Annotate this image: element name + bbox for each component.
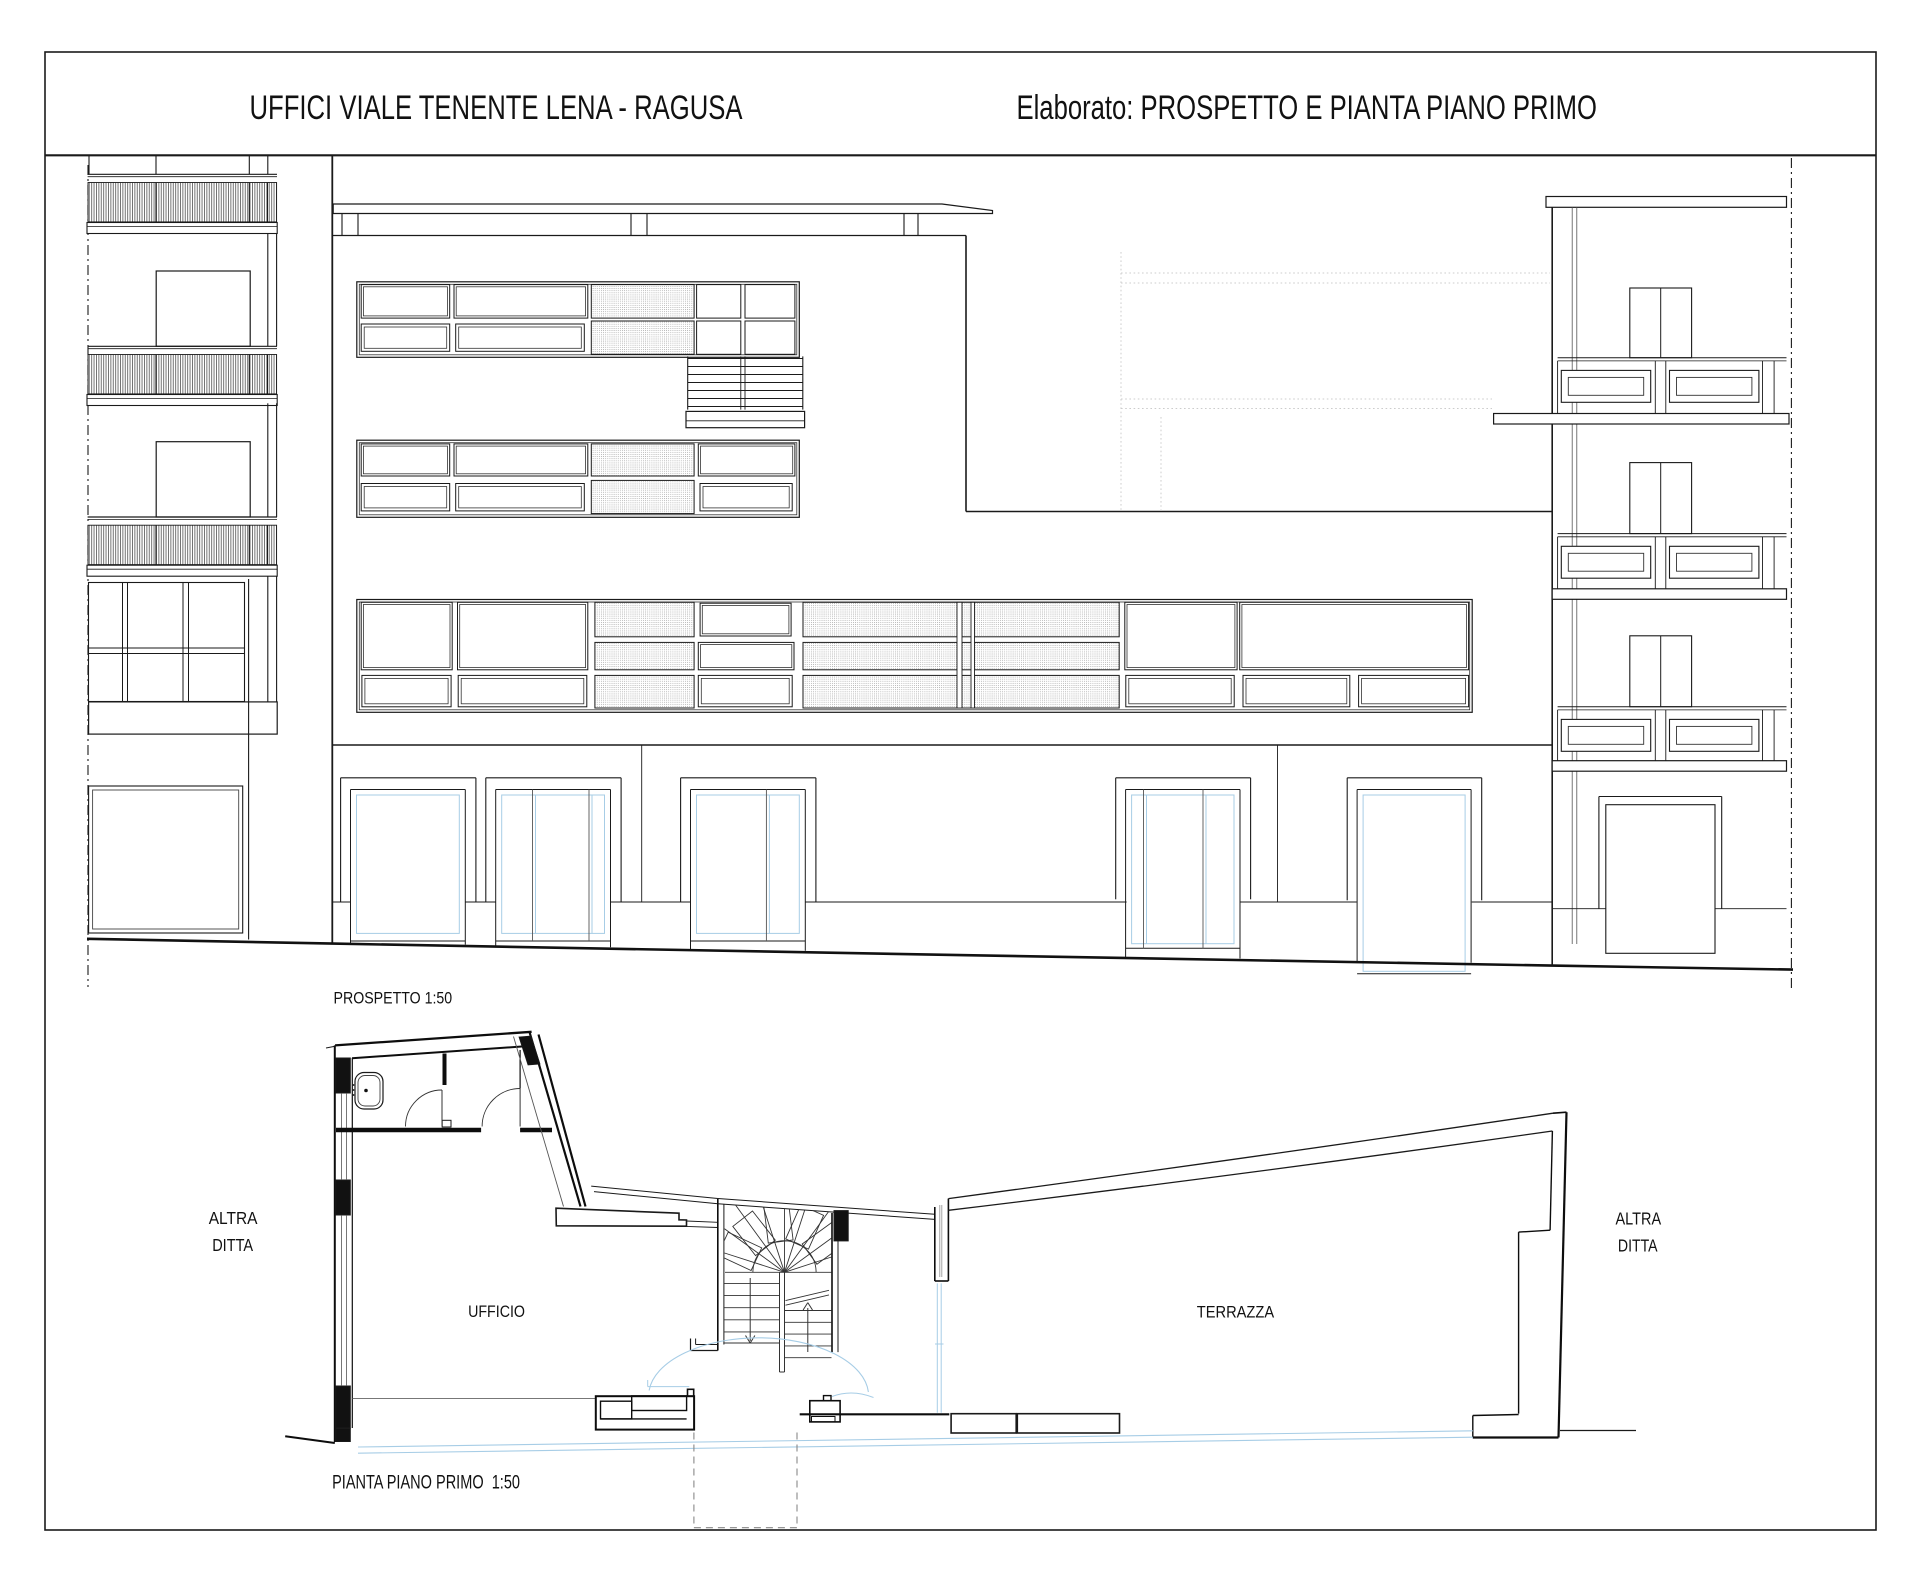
svg-text:PIANTA PIANO PRIMO 1:50: PIANTA PIANO PRIMO 1:50 [332, 1472, 520, 1493]
svg-text:ALTRA: ALTRA [1616, 1208, 1662, 1228]
svg-text:TERRAZZA: TERRAZZA [1197, 1304, 1274, 1322]
svg-text:ALTRA: ALTRA [209, 1208, 258, 1228]
svg-text:DITTA: DITTA [212, 1235, 253, 1255]
svg-text:Elaborato: PROSPETTO E PIANTA: Elaborato: PROSPETTO E PIANTA PIANO PRIM… [1017, 89, 1598, 127]
svg-text:UFFICI VIALE TENENTE LENA - RA: UFFICI VIALE TENENTE LENA - RAGUSA [250, 89, 743, 127]
svg-text:UFFICIO: UFFICIO [468, 1303, 525, 1321]
svg-text:DITTA: DITTA [1618, 1235, 1658, 1255]
svg-text:PROSPETTO 1:50: PROSPETTO 1:50 [334, 989, 453, 1008]
